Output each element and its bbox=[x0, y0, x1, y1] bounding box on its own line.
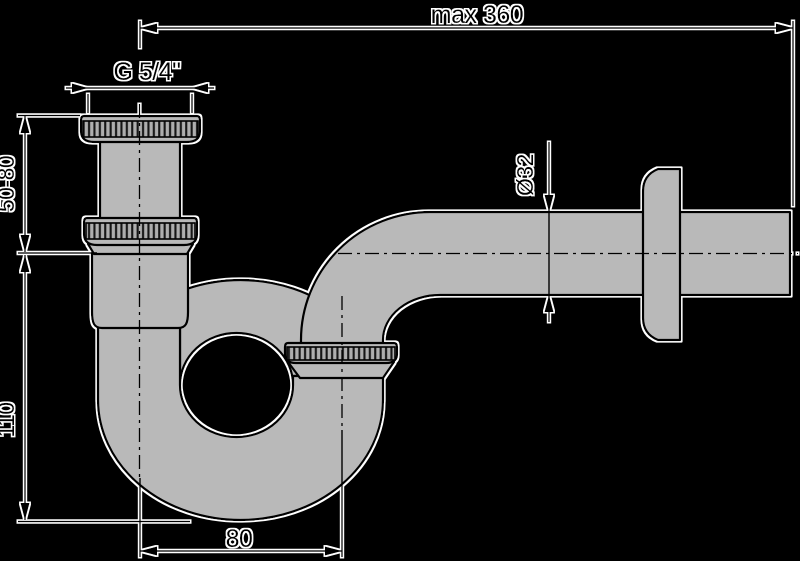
top-union-nut bbox=[81, 116, 200, 142]
siphon-technical-drawing: max 360 G 5/4" 50-80 110 bbox=[0, 0, 800, 561]
dim-label-thread: G 5/4" bbox=[113, 58, 180, 86]
outlet-pipe-elbow bbox=[301, 212, 790, 346]
arrowhead-left bbox=[140, 24, 157, 33]
arrowhead-right bbox=[776, 24, 793, 33]
dim-label-trap-depth: 110 bbox=[0, 402, 19, 437]
middle-union-nut bbox=[84, 218, 197, 254]
dim-label-max-360: max 360 bbox=[431, 1, 523, 29]
trap-cup bbox=[92, 253, 188, 328]
outlet-union-nut bbox=[285, 343, 397, 378]
arrowhead-left bbox=[72, 84, 88, 93]
arrowhead-down bbox=[545, 195, 554, 212]
arrowhead-down bbox=[21, 503, 30, 520]
arrowhead-down bbox=[21, 235, 30, 252]
wall-flange bbox=[643, 169, 680, 340]
arrowhead-up bbox=[21, 116, 30, 133]
arrowhead-up bbox=[21, 255, 30, 272]
dimension-max-360: max 360 bbox=[140, 1, 793, 206]
arrowhead-up bbox=[545, 295, 554, 312]
dim-label-pipe-diameter: Ø32 bbox=[512, 154, 538, 196]
dim-label-trap-offset: 80 bbox=[226, 525, 253, 553]
arrowhead-right bbox=[192, 84, 208, 93]
pipe-shapes bbox=[81, 116, 790, 520]
dim-label-adjust-range: 50-80 bbox=[0, 156, 19, 212]
nut-skirt bbox=[288, 362, 394, 378]
arrowhead-right bbox=[325, 547, 342, 556]
arrowhead-left bbox=[140, 547, 157, 556]
